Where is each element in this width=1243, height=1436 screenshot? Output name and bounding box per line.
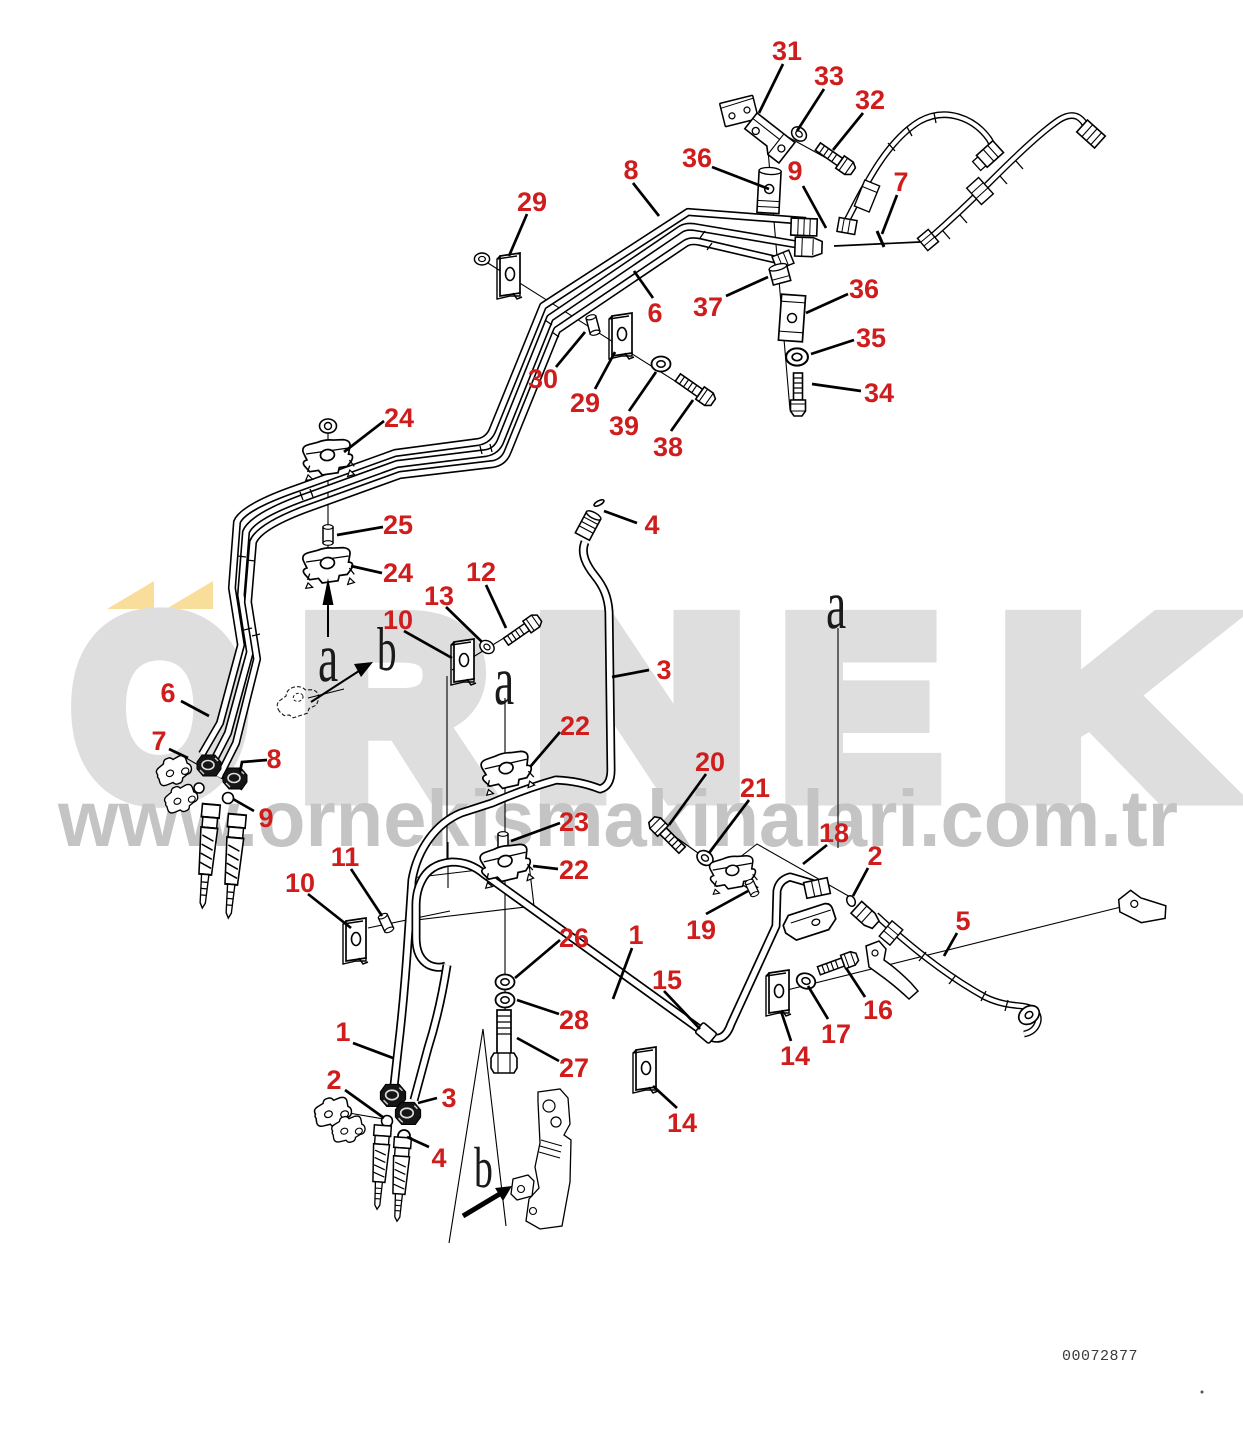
svg-text:10: 10: [285, 868, 315, 898]
svg-text:7: 7: [151, 726, 166, 756]
svg-text:00072877: 00072877: [1062, 1348, 1138, 1365]
svg-text:www.ornekismakinalari.com.tr: www.ornekismakinalari.com.tr: [57, 774, 1178, 863]
svg-text:2: 2: [867, 841, 882, 871]
svg-text:15: 15: [652, 965, 682, 995]
svg-text:a: a: [494, 641, 514, 719]
svg-text:29: 29: [517, 187, 547, 217]
svg-text:36: 36: [849, 274, 879, 304]
svg-text:21: 21: [740, 773, 770, 803]
svg-text:20: 20: [695, 747, 725, 777]
svg-text:6: 6: [160, 678, 175, 708]
svg-text:12: 12: [466, 557, 496, 587]
svg-text:24: 24: [383, 558, 413, 588]
svg-text:2: 2: [326, 1065, 341, 1095]
svg-text:11: 11: [331, 842, 360, 872]
svg-text:32: 32: [855, 85, 885, 115]
svg-text:4: 4: [644, 510, 659, 540]
svg-text:28: 28: [559, 1005, 589, 1035]
svg-text:33: 33: [814, 61, 844, 91]
svg-text:34: 34: [864, 378, 894, 408]
svg-text:8: 8: [623, 155, 638, 185]
svg-text:6: 6: [647, 298, 662, 328]
svg-text:a: a: [826, 565, 846, 643]
svg-text:24: 24: [384, 403, 414, 433]
svg-text:17: 17: [821, 1019, 851, 1049]
svg-text:31: 31: [772, 36, 802, 66]
svg-text:8: 8: [266, 744, 281, 774]
svg-text:3: 3: [441, 1083, 456, 1113]
svg-text:16: 16: [863, 995, 893, 1025]
svg-text:1: 1: [628, 920, 643, 950]
svg-text:9: 9: [787, 156, 802, 186]
svg-text:5: 5: [955, 906, 970, 936]
svg-text:18: 18: [819, 818, 849, 848]
svg-text:30: 30: [528, 364, 558, 394]
svg-text:29: 29: [570, 388, 600, 418]
svg-text:37: 37: [693, 292, 723, 322]
svg-text:3: 3: [656, 655, 671, 685]
svg-text:25: 25: [383, 510, 413, 540]
svg-text:23: 23: [559, 807, 589, 837]
svg-text:38: 38: [653, 432, 683, 462]
svg-text:19: 19: [686, 915, 716, 945]
svg-text:10: 10: [383, 605, 413, 635]
svg-text:b: b: [474, 1135, 493, 1200]
svg-text:14: 14: [667, 1108, 697, 1138]
svg-text:22: 22: [560, 711, 590, 741]
svg-text:13: 13: [424, 581, 454, 611]
svg-text:1: 1: [335, 1017, 350, 1047]
svg-text:26: 26: [559, 923, 589, 953]
svg-text:39: 39: [609, 411, 639, 441]
svg-text:7: 7: [893, 167, 908, 197]
svg-text:9: 9: [258, 803, 273, 833]
svg-text:27: 27: [559, 1053, 589, 1083]
svg-text:14: 14: [780, 1041, 810, 1071]
svg-text:4: 4: [431, 1143, 446, 1173]
svg-text:22: 22: [559, 855, 589, 885]
svg-text:36: 36: [682, 143, 712, 173]
svg-text:35: 35: [856, 323, 886, 353]
